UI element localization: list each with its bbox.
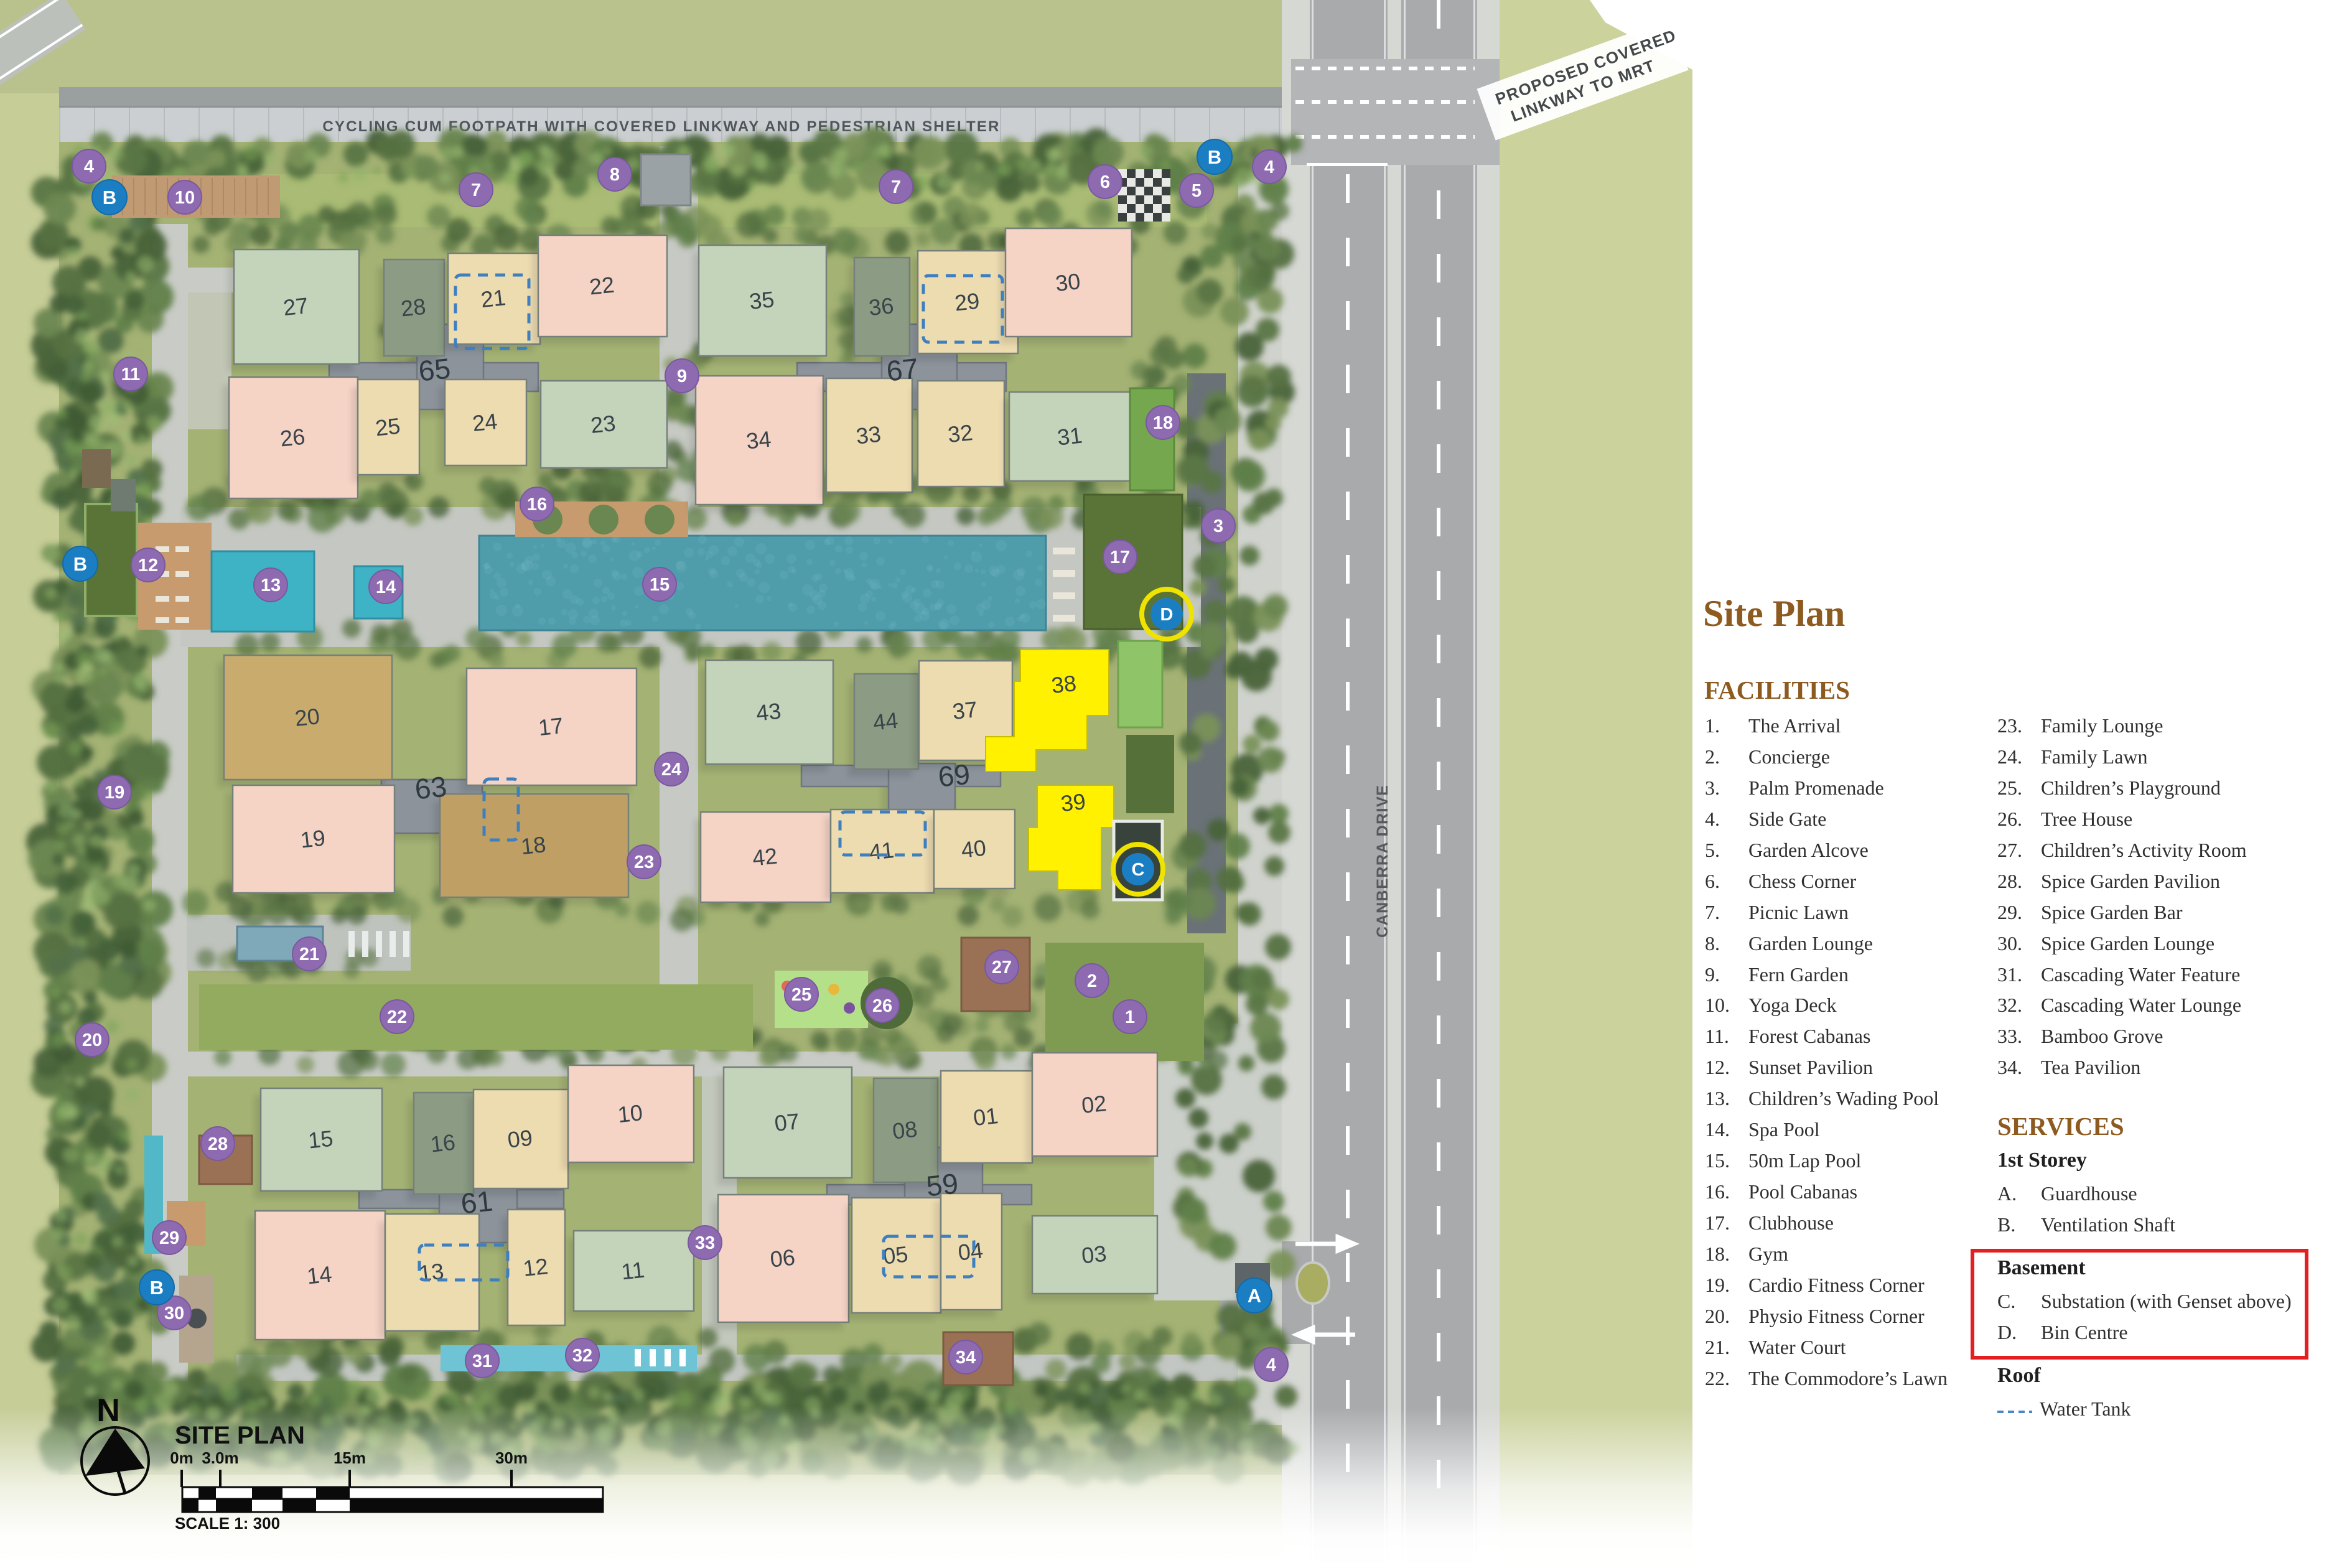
svg-text:15m: 15m bbox=[334, 1449, 366, 1467]
svg-text:32: 32 bbox=[946, 419, 974, 447]
svg-text:21: 21 bbox=[480, 284, 507, 312]
svg-text:41: 41 bbox=[868, 837, 895, 865]
svg-text:15: 15 bbox=[650, 575, 670, 595]
svg-text:69: 69 bbox=[936, 758, 971, 793]
svg-text:13: 13 bbox=[418, 1258, 445, 1286]
svg-text:29: 29 bbox=[159, 1228, 179, 1248]
svg-text:20: 20 bbox=[82, 1030, 102, 1050]
svg-text:9: 9 bbox=[677, 366, 687, 386]
svg-text:7: 7 bbox=[891, 177, 901, 197]
svg-text:61: 61 bbox=[459, 1185, 494, 1220]
svg-text:0m: 0m bbox=[170, 1449, 194, 1467]
svg-text:10: 10 bbox=[175, 188, 195, 208]
svg-text:18: 18 bbox=[1153, 413, 1173, 433]
svg-text:22: 22 bbox=[387, 1007, 407, 1027]
svg-text:24: 24 bbox=[471, 408, 498, 436]
svg-text:B: B bbox=[103, 187, 116, 208]
svg-text:19: 19 bbox=[299, 825, 327, 853]
svg-text:33: 33 bbox=[855, 421, 882, 449]
svg-text:3: 3 bbox=[1213, 516, 1223, 536]
svg-text:34: 34 bbox=[956, 1348, 976, 1368]
svg-text:34: 34 bbox=[745, 426, 772, 454]
svg-text:65: 65 bbox=[417, 352, 452, 388]
svg-text:02: 02 bbox=[1080, 1090, 1108, 1118]
svg-text:18: 18 bbox=[520, 831, 547, 859]
svg-text:6: 6 bbox=[1100, 172, 1110, 192]
svg-text:12: 12 bbox=[522, 1253, 549, 1281]
svg-text:06: 06 bbox=[769, 1244, 796, 1272]
svg-text:13: 13 bbox=[261, 576, 281, 595]
svg-text:N: N bbox=[96, 1393, 120, 1429]
svg-text:35: 35 bbox=[748, 286, 775, 314]
svg-text:D: D bbox=[1160, 605, 1174, 625]
svg-text:33: 33 bbox=[695, 1233, 715, 1253]
svg-text:22: 22 bbox=[588, 272, 615, 300]
svg-text:5: 5 bbox=[1192, 181, 1202, 201]
svg-text:CANBERRA DRIVE: CANBERRA DRIVE bbox=[1374, 785, 1391, 938]
svg-text:C: C bbox=[1132, 860, 1145, 880]
svg-text:17: 17 bbox=[537, 712, 564, 740]
svg-text:23: 23 bbox=[589, 410, 617, 438]
svg-text:B: B bbox=[1208, 146, 1221, 168]
svg-text:2: 2 bbox=[1087, 971, 1097, 991]
svg-text:26: 26 bbox=[872, 996, 892, 1016]
svg-text:1: 1 bbox=[1125, 1007, 1135, 1027]
svg-text:3.0m: 3.0m bbox=[202, 1449, 238, 1467]
svg-text:14: 14 bbox=[306, 1261, 333, 1289]
svg-text:11: 11 bbox=[620, 1257, 645, 1285]
svg-text:05: 05 bbox=[882, 1241, 909, 1269]
svg-text:67: 67 bbox=[885, 352, 920, 388]
svg-text:37: 37 bbox=[951, 696, 979, 724]
svg-text:40: 40 bbox=[960, 835, 987, 863]
svg-text:25: 25 bbox=[374, 413, 401, 441]
svg-text:23: 23 bbox=[634, 852, 654, 872]
svg-text:30: 30 bbox=[1054, 268, 1081, 296]
svg-text:08: 08 bbox=[891, 1116, 918, 1144]
svg-text:12: 12 bbox=[138, 556, 158, 576]
svg-text:28: 28 bbox=[208, 1134, 228, 1154]
svg-text:27: 27 bbox=[282, 292, 309, 320]
svg-text:4: 4 bbox=[84, 157, 94, 177]
svg-text:4: 4 bbox=[1266, 1355, 1276, 1375]
svg-text:15: 15 bbox=[307, 1126, 334, 1154]
svg-text:63: 63 bbox=[413, 770, 448, 806]
svg-text:28: 28 bbox=[399, 294, 427, 322]
svg-text:07: 07 bbox=[773, 1108, 801, 1136]
svg-text:16: 16 bbox=[527, 495, 547, 515]
svg-text:SCALE 1: 300: SCALE 1: 300 bbox=[175, 1514, 280, 1533]
svg-text:17: 17 bbox=[1110, 548, 1130, 567]
svg-text:19: 19 bbox=[105, 783, 124, 803]
svg-text:8: 8 bbox=[610, 165, 620, 185]
svg-text:42: 42 bbox=[751, 843, 778, 871]
svg-text:20: 20 bbox=[294, 703, 321, 731]
svg-text:01: 01 bbox=[972, 1103, 999, 1131]
svg-text:30: 30 bbox=[164, 1304, 184, 1323]
svg-text:43: 43 bbox=[755, 698, 782, 726]
svg-text:30m: 30m bbox=[495, 1449, 528, 1467]
svg-text:14: 14 bbox=[376, 577, 396, 597]
svg-text:CYCLING CUM FOOTPATH WITH COVE: CYCLING CUM FOOTPATH WITH COVERED LINKWA… bbox=[322, 118, 1000, 135]
svg-text:B: B bbox=[73, 553, 87, 575]
svg-text:21: 21 bbox=[299, 945, 319, 964]
svg-text:31: 31 bbox=[472, 1351, 492, 1371]
svg-text:27: 27 bbox=[992, 958, 1012, 978]
svg-text:25: 25 bbox=[791, 985, 811, 1005]
svg-text:04: 04 bbox=[957, 1238, 984, 1266]
svg-text:39: 39 bbox=[1060, 788, 1087, 816]
svg-text:09: 09 bbox=[506, 1125, 534, 1153]
svg-text:A: A bbox=[1248, 1285, 1261, 1307]
svg-text:7: 7 bbox=[471, 180, 481, 200]
svg-text:44: 44 bbox=[872, 707, 899, 735]
svg-text:36: 36 bbox=[867, 292, 895, 320]
svg-text:26: 26 bbox=[279, 424, 306, 452]
svg-text:38: 38 bbox=[1050, 670, 1078, 698]
svg-text:32: 32 bbox=[572, 1346, 592, 1366]
svg-text:SITE PLAN: SITE PLAN bbox=[175, 1422, 305, 1449]
svg-text:31: 31 bbox=[1056, 422, 1083, 450]
svg-text:59: 59 bbox=[925, 1167, 959, 1203]
svg-text:10: 10 bbox=[617, 1099, 644, 1127]
svg-text:4: 4 bbox=[1264, 157, 1274, 177]
svg-text:29: 29 bbox=[953, 288, 981, 316]
svg-text:24: 24 bbox=[661, 760, 681, 780]
svg-text:16: 16 bbox=[429, 1129, 457, 1157]
svg-text:03: 03 bbox=[1080, 1241, 1108, 1269]
svg-text:B: B bbox=[150, 1277, 164, 1299]
svg-text:11: 11 bbox=[121, 365, 141, 385]
